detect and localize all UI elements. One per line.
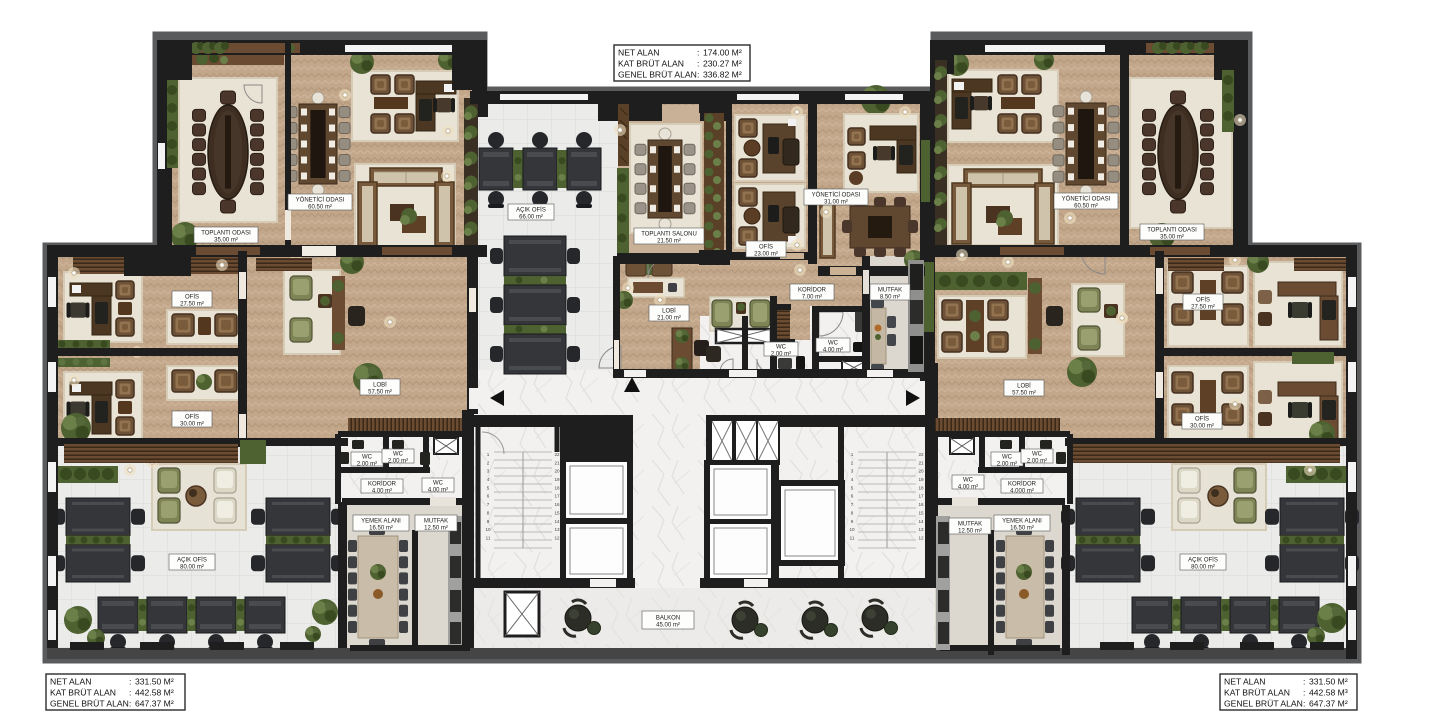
svg-text:5: 5: [851, 485, 854, 490]
svg-text:12.50 m²: 12.50 m²: [958, 529, 982, 535]
svg-text:30.00 m²: 30.00 m²: [180, 422, 204, 428]
svg-text:8: 8: [487, 510, 490, 515]
svg-text:KAT BRÜT ALAN: KAT BRÜT ALAN: [50, 688, 116, 698]
svg-text::: :: [129, 699, 131, 709]
svg-text:19: 19: [554, 477, 560, 482]
svg-text:647.37 M²: 647.37 M²: [1309, 699, 1348, 709]
svg-text::: :: [129, 688, 131, 698]
svg-text:WC: WC: [1002, 455, 1013, 461]
svg-text:442.58 M³: 442.58 M³: [1309, 688, 1348, 698]
svg-text:KAT BRÜT ALAN: KAT BRÜT ALAN: [618, 59, 684, 69]
svg-text:WC: WC: [433, 481, 444, 487]
svg-text:14: 14: [554, 519, 560, 524]
svg-text:OFİS: OFİS: [185, 294, 199, 301]
svg-text:MUTFAK: MUTFAK: [878, 288, 902, 294]
svg-text:GENEL BRÜT ALAN: GENEL BRÜT ALAN: [50, 699, 129, 709]
svg-text:21: 21: [918, 460, 924, 465]
svg-text:4.00 m²: 4.00 m²: [428, 488, 448, 494]
svg-text:27.50 m²: 27.50 m²: [180, 302, 204, 308]
svg-text:9: 9: [851, 519, 854, 524]
svg-text:1: 1: [851, 452, 854, 457]
svg-text:7: 7: [487, 502, 490, 507]
svg-text:WC: WC: [776, 345, 787, 351]
svg-text:2.00 m²: 2.00 m²: [1027, 459, 1047, 465]
svg-text:YÖNETİCİ ODASI: YÖNETİCİ ODASI: [296, 197, 345, 204]
svg-text:80.00 m²: 80.00 m²: [1191, 565, 1215, 571]
svg-text:60.50 m²: 60.50 m²: [308, 205, 332, 211]
svg-text:35.00 m²: 35.00 m²: [1160, 235, 1184, 241]
svg-text:KAT BRÜT ALAN: KAT BRÜT ALAN: [1224, 688, 1290, 698]
svg-text:12: 12: [918, 535, 924, 540]
svg-text:YEMEK ALANI: YEMEK ALANI: [361, 519, 401, 525]
svg-text:17: 17: [554, 494, 560, 499]
svg-text:21.50 m²: 21.50 m²: [657, 239, 681, 245]
svg-text:35.00 m²: 35.00 m²: [214, 238, 238, 244]
svg-text:MUTFAK: MUTFAK: [958, 522, 982, 528]
svg-text:OFİS: OFİS: [759, 244, 773, 251]
svg-text:13: 13: [918, 527, 924, 532]
svg-text:2.00 m²: 2.00 m²: [997, 462, 1017, 468]
svg-text:TOPLANTI SALONU: TOPLANTI SALONU: [641, 232, 697, 238]
svg-text:10: 10: [849, 527, 855, 532]
svg-text:3: 3: [487, 469, 490, 474]
svg-text:10: 10: [485, 527, 491, 532]
svg-text:WC: WC: [828, 341, 839, 347]
svg-text:647.37 M²: 647.37 M²: [135, 699, 174, 709]
svg-text:9: 9: [487, 519, 490, 524]
svg-text:WC: WC: [963, 478, 974, 484]
svg-text::: :: [1303, 677, 1305, 687]
svg-text:31.00 m²: 31.00 m²: [824, 200, 848, 206]
svg-text:27.50 m²: 27.50 m²: [1191, 305, 1215, 311]
svg-text:21.00 m²: 21.00 m²: [657, 316, 681, 322]
svg-text:7: 7: [851, 502, 854, 507]
svg-text:16: 16: [918, 502, 924, 507]
svg-text:23.00 m²: 23.00 m²: [754, 252, 778, 258]
svg-text:230.27 M²: 230.27 M²: [703, 59, 742, 69]
svg-text:2: 2: [487, 460, 490, 465]
svg-text:LOBİ: LOBİ: [373, 382, 387, 389]
svg-text:TOPLANTI ODASI: TOPLANTI ODASI: [201, 231, 251, 237]
svg-text:16: 16: [554, 502, 560, 507]
svg-text:16.50 m²: 16.50 m²: [369, 526, 393, 532]
svg-text:3: 3: [851, 469, 854, 474]
svg-text:20: 20: [918, 469, 924, 474]
svg-text:20: 20: [554, 469, 560, 474]
svg-text:12.50 m²: 12.50 m²: [424, 526, 448, 532]
svg-text::: :: [697, 59, 699, 69]
svg-text:57.50 m²: 57.50 m²: [1012, 391, 1036, 397]
svg-text:LOBİ: LOBİ: [662, 308, 676, 315]
svg-text:KORİDOR: KORİDOR: [798, 287, 827, 294]
svg-text:15: 15: [918, 510, 924, 515]
svg-text::: :: [129, 677, 131, 687]
svg-text:KORİDOR: KORİDOR: [1008, 481, 1037, 488]
svg-text:4.000 m²: 4.000 m²: [1010, 489, 1034, 495]
svg-text:2.00 m²: 2.00 m²: [771, 352, 791, 358]
svg-text:331.50 M²: 331.50 M²: [135, 677, 174, 687]
svg-text:442.58 M²: 442.58 M²: [135, 688, 174, 698]
svg-text:66.00 m²: 66.00 m²: [519, 215, 543, 221]
svg-text:331.50 M²: 331.50 M²: [1309, 677, 1348, 687]
svg-text:4.00 m²: 4.00 m²: [823, 348, 843, 354]
svg-text:BALKON: BALKON: [656, 616, 680, 622]
svg-text:8: 8: [851, 510, 854, 515]
svg-text:WC: WC: [362, 455, 373, 461]
svg-text::: :: [1303, 699, 1305, 709]
svg-text:WC: WC: [1032, 452, 1043, 458]
svg-text::: :: [1303, 688, 1305, 698]
svg-text:13: 13: [554, 527, 560, 532]
svg-text::: :: [697, 48, 699, 58]
svg-text:16.50 m²: 16.50 m²: [1010, 526, 1034, 532]
svg-text:4: 4: [851, 477, 854, 482]
svg-text::: :: [697, 70, 699, 80]
svg-text:OFİS: OFİS: [1195, 416, 1209, 423]
svg-text:AÇIK OFİS: AÇIK OFİS: [1188, 557, 1218, 564]
svg-text:18: 18: [918, 485, 924, 490]
svg-text:YÖNETİCİ ODASI: YÖNETİCİ ODASI: [812, 192, 861, 199]
svg-text:11: 11: [486, 535, 491, 540]
svg-text:KORİDOR: KORİDOR: [368, 481, 397, 488]
svg-text:19: 19: [918, 477, 924, 482]
svg-text:1: 1: [487, 452, 490, 457]
svg-text:6: 6: [851, 494, 854, 499]
svg-text:57.50 m²: 57.50 m²: [368, 390, 392, 396]
svg-text:14: 14: [918, 519, 924, 524]
svg-text:4.00 m²: 4.00 m²: [958, 485, 978, 491]
svg-text:22: 22: [554, 452, 560, 457]
svg-text:NET ALAN: NET ALAN: [50, 677, 91, 687]
svg-text:OFİS: OFİS: [185, 414, 199, 421]
svg-text:YEMEK ALANI: YEMEK ALANI: [1002, 519, 1042, 525]
svg-text:OFİS: OFİS: [1196, 297, 1210, 304]
svg-text:WC: WC: [393, 452, 404, 458]
svg-text:5: 5: [487, 485, 490, 490]
svg-text:2.00 m²: 2.00 m²: [388, 459, 408, 465]
svg-text:2.00 m²: 2.00 m²: [357, 462, 377, 468]
svg-text:MUTFAK: MUTFAK: [424, 519, 448, 525]
svg-text:2: 2: [851, 460, 854, 465]
svg-text:336.82 M²: 336.82 M²: [703, 70, 742, 80]
svg-text:17: 17: [918, 494, 924, 499]
svg-text:45.00 m²: 45.00 m²: [656, 623, 680, 629]
svg-text:15: 15: [554, 510, 560, 515]
svg-text:8.50 m²: 8.50 m²: [880, 295, 900, 301]
svg-text:80.00 m²: 80.00 m²: [180, 565, 204, 571]
svg-text:18: 18: [554, 485, 560, 490]
svg-text:12: 12: [554, 535, 560, 540]
svg-text:4: 4: [487, 477, 490, 482]
svg-text:60.50 m²: 60.50 m²: [1074, 204, 1098, 210]
svg-text:4.00 m²: 4.00 m²: [372, 489, 392, 495]
svg-text:NET ALAN: NET ALAN: [618, 48, 659, 58]
svg-text:30.00 m²: 30.00 m²: [1190, 424, 1214, 430]
svg-text:6: 6: [487, 494, 490, 499]
svg-text:174.00 M²: 174.00 M²: [703, 48, 742, 58]
svg-text:GENEL BRÜT ALAN: GENEL BRÜT ALAN: [618, 70, 697, 80]
svg-text:GENEL BRÜT ALAN: GENEL BRÜT ALAN: [1224, 699, 1303, 709]
svg-text:NET ALAN: NET ALAN: [1224, 677, 1265, 687]
svg-text:21: 21: [554, 460, 560, 465]
svg-text:22: 22: [918, 452, 924, 457]
svg-text:AÇIK OFİS: AÇIK OFİS: [516, 207, 546, 214]
svg-text:11: 11: [850, 535, 855, 540]
svg-text:LOBİ: LOBİ: [1017, 383, 1031, 390]
svg-text:AÇIK OFİS: AÇIK OFİS: [177, 557, 207, 564]
svg-text:7.00 m²: 7.00 m²: [802, 295, 822, 301]
svg-text:YÖNETİCİ ODASI: YÖNETİCİ ODASI: [1062, 196, 1111, 203]
svg-text:TOPLANTI ODASI: TOPLANTI ODASI: [1147, 228, 1197, 234]
